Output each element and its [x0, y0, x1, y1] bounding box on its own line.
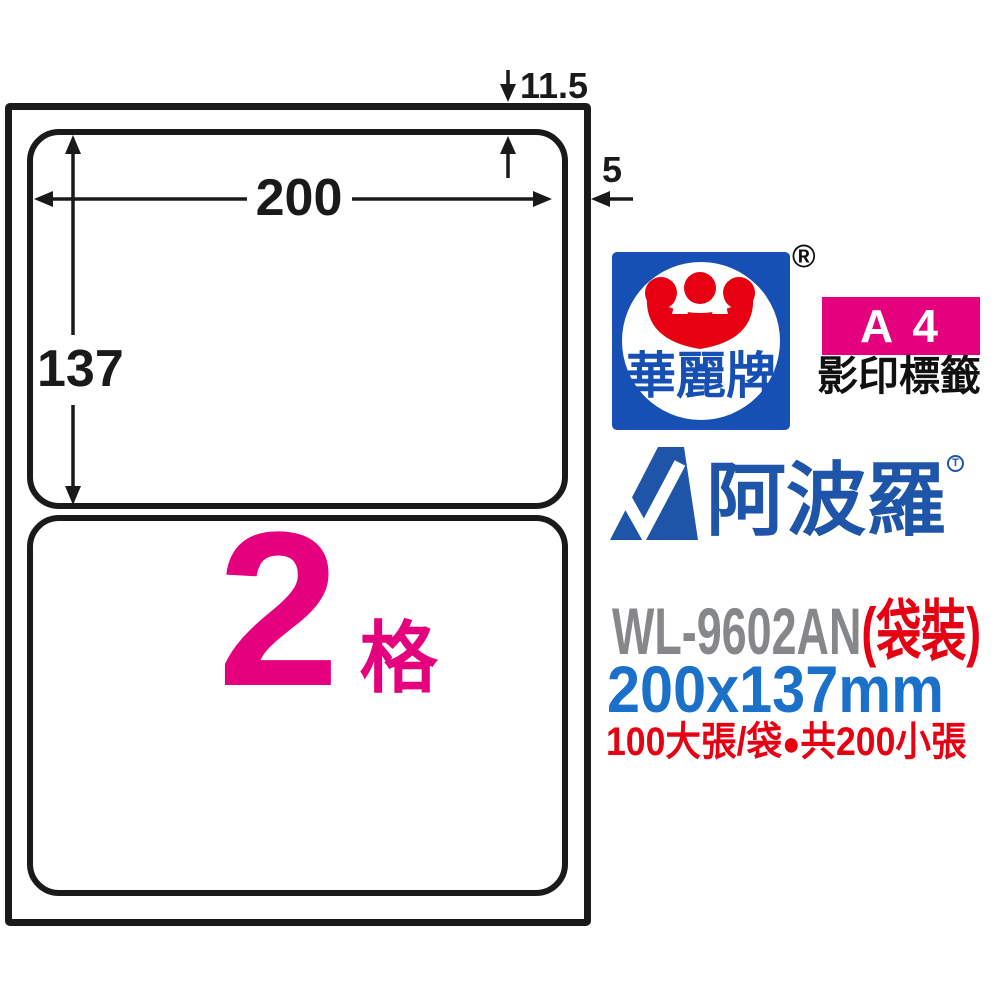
product-quantity: 100大張/袋●共200小張	[606, 722, 967, 762]
registered-trademark-icon: ®	[792, 240, 816, 272]
dim-side-margin-arrow	[591, 191, 633, 207]
cell-unit: 格	[360, 619, 438, 697]
label-cell-bottom: 2 格	[27, 515, 568, 896]
quantity-sheets: 100大張/袋	[606, 720, 782, 764]
apollo-a-icon	[610, 447, 702, 540]
dim-width-value: 200	[253, 172, 345, 224]
quantity-labels: 共200小張	[800, 720, 966, 764]
paper-size-badge: A 4	[822, 297, 980, 355]
cell-count: 2	[217, 499, 339, 719]
product-size: 200x137mm	[607, 656, 944, 722]
dim-side-margin-value: 5	[598, 152, 626, 188]
brand-name: 華麗牌	[626, 348, 776, 404]
apollo-trademark-icon: T	[947, 455, 964, 472]
badge-subtitle: 影印標籤	[817, 356, 981, 397]
bullet-dot: ●	[782, 725, 800, 763]
dim-height-value: 137	[37, 343, 124, 395]
cell-count-label: 2 格	[33, 499, 562, 719]
apollo-logo: 阿波羅 T	[610, 447, 946, 540]
product-image: 2 格 200 137 11.5 5	[0, 0, 1000, 1000]
dim-top-margin-value: 11.5	[520, 68, 588, 104]
apollo-name: 阿波羅	[706, 462, 946, 540]
huali-brand-logo: 華麗牌	[612, 252, 790, 430]
